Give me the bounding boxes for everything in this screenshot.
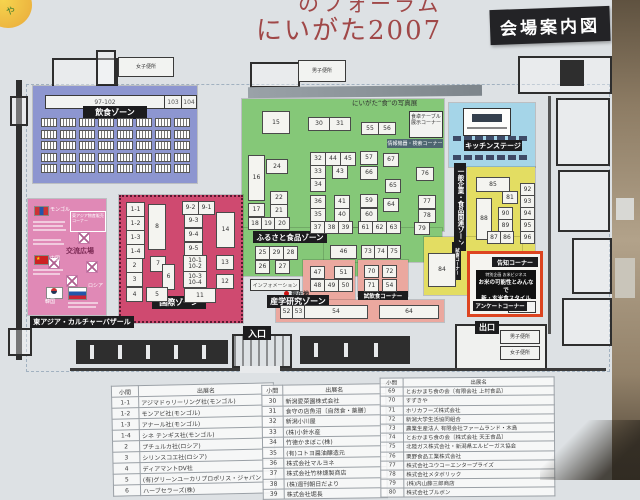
- dining-table-icon: [136, 164, 152, 173]
- booth-19: 19: [261, 217, 275, 230]
- booth-27: 27: [275, 260, 290, 274]
- dining-table-icon: [60, 164, 76, 173]
- decor-line: [33, 221, 65, 223]
- kitchen-seat-icon: [486, 155, 494, 160]
- russia-label: ロシア: [88, 283, 103, 289]
- dining-table-icon: [98, 118, 114, 127]
- restroom-label: 女子便所: [136, 64, 156, 70]
- booth-41: 41: [334, 195, 350, 209]
- booth-number-cell: 3: [113, 452, 140, 464]
- column-header: 小間: [262, 385, 283, 396]
- booth-number-cell: 78: [381, 470, 404, 479]
- dining-table-icon: [155, 141, 171, 150]
- booth-60: 60: [360, 208, 378, 222]
- booth-64: 64: [383, 198, 399, 212]
- booth-10-1|10-2: 10-1 10-2: [183, 255, 207, 272]
- zone-bazaar-label: 東アジア・カルチャーバザール: [30, 316, 134, 328]
- booth-59: 59: [360, 194, 378, 208]
- booth-number-cell: 1-3: [112, 419, 139, 431]
- table-display-box: 食卓テーブル 展示コーナー: [409, 111, 443, 138]
- decor-line: [33, 273, 60, 275]
- zone-bazaar: モンゴル 東アジア物産販売コーナー 交流広場 ★ 中国 韓国 ロシア: [28, 199, 106, 315]
- booth-50: 50: [338, 279, 353, 292]
- dining-table-icon: [117, 118, 133, 127]
- kitchen-seat-icon: [508, 155, 516, 160]
- booth-37: 37: [310, 221, 325, 234]
- wall-slit: [202, 345, 206, 359]
- logo-fragment: や: [0, 0, 32, 28]
- dining-table-icon: [174, 164, 190, 173]
- booth-57: 57: [360, 151, 378, 165]
- dining-table-icon: [98, 153, 114, 162]
- booth-29: 29: [269, 246, 284, 260]
- restroom-label: 女子便所: [510, 350, 530, 356]
- booth-35: 35: [310, 208, 326, 222]
- decor-line: [33, 269, 63, 271]
- booth-44: 44: [325, 152, 341, 166]
- booth-87: 87: [487, 231, 501, 244]
- booth-73: 73: [361, 245, 375, 259]
- entrance-label: 入口: [243, 326, 271, 340]
- dining-table-icon: [136, 130, 152, 139]
- booth-43: 43: [332, 165, 348, 179]
- booth-96: 96: [520, 231, 535, 244]
- booth-70: 70: [364, 265, 379, 278]
- wall-segment: [70, 368, 606, 371]
- zone-kitchen-label: キッチンステージ: [464, 140, 522, 151]
- dining-table-icon: [41, 153, 57, 162]
- wall-slit: [314, 343, 318, 357]
- kitchen-seat-icon: [519, 155, 527, 160]
- booth-36: 36: [310, 195, 326, 209]
- booth-62: 62: [372, 221, 387, 234]
- booth-46: 46: [330, 245, 357, 259]
- wall-segment: [562, 298, 612, 346]
- table-icon: [78, 232, 90, 244]
- booth-number-cell: 34: [262, 437, 283, 448]
- restroom-label: 男子便所: [510, 334, 530, 340]
- dining-table-icon: [136, 118, 152, 127]
- booth-number-cell: 69: [380, 387, 403, 396]
- booth-21: 21: [270, 204, 288, 218]
- russia-flag-icon: [68, 287, 87, 300]
- booth-104-label: 104: [183, 99, 194, 106]
- booth-9-3: 9-3: [184, 214, 203, 228]
- booth-number-cell: 74: [380, 433, 403, 442]
- booth-61: 61: [358, 221, 373, 234]
- dining-table-icon: [117, 141, 133, 150]
- booth-25: 25: [255, 246, 270, 260]
- booth-2: 2: [126, 258, 143, 273]
- booth-9-2: 9-2: [182, 201, 199, 215]
- booth-number-cell: 6: [113, 485, 140, 497]
- dining-table-icon: [79, 118, 95, 127]
- booth-63: 63: [386, 221, 401, 234]
- wall-segment: [250, 62, 300, 88]
- kitchen-seat-icon: [497, 155, 505, 160]
- dining-table-icon: [174, 118, 190, 127]
- notice-line: お米の可能性とみんなで: [476, 278, 536, 294]
- booth-number-cell: 1-4: [112, 430, 139, 442]
- information-label: インフォメーション: [253, 282, 298, 289]
- booth-38: 38: [324, 221, 339, 234]
- booth-49: 49: [324, 279, 339, 292]
- decor-line: [33, 243, 64, 245]
- wall-segment: [96, 50, 116, 86]
- booth-86: 86: [500, 231, 514, 244]
- dining-table-icon: [60, 118, 76, 127]
- booth-1-3: 1-3: [126, 230, 145, 245]
- dining-table-icon: [174, 141, 190, 150]
- booth-number-cell: 37: [263, 468, 284, 479]
- booth-number-cell: 39: [263, 489, 284, 500]
- booth-54: 54: [382, 279, 397, 292]
- photo-background-object: [615, 258, 635, 298]
- restroom-box: 男子便所: [500, 330, 540, 344]
- table-row: 39株式会社堀長: [263, 488, 387, 500]
- booth-12: 12: [216, 274, 234, 289]
- booth-17: 17: [248, 203, 265, 217]
- survey-corner-label: アンケートコーナー: [473, 301, 527, 311]
- wall-slit: [344, 343, 348, 357]
- booth-33: 33: [310, 165, 326, 179]
- photo-background-object: [616, 198, 634, 220]
- dining-table-icon: [136, 141, 152, 150]
- booth-81: 81: [502, 191, 518, 204]
- restroom-box: 女子便所: [118, 57, 174, 77]
- korea-label: 韓国: [45, 299, 55, 305]
- china-flag-icon: ★: [34, 255, 49, 265]
- booth-number-cell: 4: [113, 463, 140, 475]
- dining-table-icon: [60, 130, 76, 139]
- booth-54: 54: [304, 305, 368, 319]
- zone-general-label: 一般企業・食品関連ゾーン: [454, 163, 466, 251]
- booth-number-cell: 38: [263, 479, 284, 490]
- restroom-label: 男子便所: [312, 68, 332, 74]
- booth-77: 77: [418, 195, 436, 209]
- entrance-gap: [240, 366, 280, 373]
- zone-dining: 97-102 103 104 飲食ゾーン: [33, 86, 197, 183]
- dining-table-icon: [41, 141, 57, 150]
- booth-78: 78: [418, 209, 436, 223]
- venue-map-sign: や のフォーラム にいがた2007 会場案内図 女子便所 男子便所 男子便所 女…: [0, 0, 640, 480]
- zone-kitchen: キッチンステージ: [449, 103, 535, 167]
- booth-85: 85: [476, 177, 510, 192]
- dining-table-icon: [174, 130, 190, 139]
- booth-number-cell: 31: [262, 406, 283, 417]
- booth-26: 26: [255, 260, 270, 274]
- wall-segment: [572, 238, 612, 294]
- decor-line: [33, 225, 63, 227]
- kitchen-seat-icon: [464, 155, 472, 160]
- booth-1-4: 1-4: [126, 244, 145, 259]
- dining-table-icon: [79, 141, 95, 150]
- dining-table-icon: [60, 153, 76, 162]
- booth-72: 72: [382, 265, 397, 278]
- wall-segment: [10, 96, 28, 126]
- booth-4: 4: [126, 287, 143, 302]
- bazaar-corner-box: 東アジア物産販売コーナー: [70, 211, 106, 232]
- wall-segment: [556, 98, 610, 166]
- booth-number-cell: 71: [380, 406, 403, 415]
- dining-table-icon: [155, 130, 171, 139]
- booth-number-cell: 32: [262, 416, 283, 427]
- wall-segment: [558, 170, 610, 232]
- table-row: 6ハーブセラーズ(株): [113, 482, 275, 496]
- dining-table-icon: [98, 141, 114, 150]
- booth-51: 51: [334, 266, 353, 279]
- booth-47: 47: [310, 266, 325, 279]
- booth-number-cell: 5: [113, 474, 140, 486]
- wall-slit: [118, 345, 122, 359]
- logo-char: や: [6, 4, 15, 17]
- booth-28: 28: [283, 246, 298, 260]
- mongolia-flag-icon: [34, 206, 49, 216]
- booth-64: 64: [379, 305, 439, 319]
- dining-table-icon: [98, 130, 114, 139]
- exhibitor-table-group-2: 小間出展名30新潟愛菜園株式会社31食守の店魚沼〔自然食・薬膳〕32新潟小川屋3…: [261, 383, 388, 500]
- booth-14: 14: [216, 212, 235, 248]
- booth-number-cell: 35: [263, 447, 284, 458]
- booth-32: 32: [310, 152, 326, 166]
- wall-slit: [90, 345, 94, 359]
- dining-table-icon: [98, 164, 114, 173]
- exhibitor-name-cell: 株式会社ブルボン: [404, 487, 555, 497]
- booth-103: 103: [164, 95, 182, 109]
- wall-slit: [374, 343, 378, 357]
- booth-30: 30: [308, 117, 330, 131]
- booth-number-cell: 70: [380, 396, 403, 405]
- dining-table-icon: [41, 164, 57, 173]
- booth-22: 22: [270, 191, 288, 205]
- tasting-corner-label: 試飲食コーナー: [358, 291, 408, 300]
- booth-66: 66: [360, 166, 378, 180]
- dining-table-icon: [41, 130, 57, 139]
- booth-number-cell: 30: [262, 395, 283, 406]
- booth-number-cell: 33: [262, 427, 283, 438]
- booth-number-cell: 75: [381, 442, 404, 451]
- exit-label: 出口: [475, 321, 499, 334]
- wall-segment: [76, 340, 228, 364]
- restroom-box: 男子便所: [298, 60, 346, 82]
- booth-79: 79: [414, 222, 430, 235]
- booth-number-cell: 80: [381, 488, 404, 497]
- booth-104: 104: [181, 95, 197, 109]
- booth-103-label: 103: [167, 99, 178, 106]
- decor-line: [33, 239, 61, 241]
- kitchen-seat-icon: [453, 136, 461, 141]
- dining-table-icon: [79, 164, 95, 173]
- dining-table-icon: [60, 141, 76, 150]
- booth-number-cell: 72: [380, 415, 403, 424]
- dining-table-icon: [155, 153, 171, 162]
- dining-table-icon: [117, 153, 133, 162]
- wall-segment: [548, 96, 551, 334]
- booth-10-3|10-4: 10-3 10-4: [183, 271, 207, 288]
- booth-18: 18: [248, 217, 262, 230]
- dining-table-icon: [79, 153, 95, 162]
- booth-3: 3: [126, 272, 143, 287]
- wall-segment: [300, 336, 410, 364]
- dining-strip-label: 97-102: [94, 99, 115, 106]
- booth-65: 65: [385, 179, 401, 193]
- plaza-label: 交流広場: [66, 246, 94, 256]
- booth-9-4: 9-4: [184, 228, 203, 242]
- booth-56: 56: [378, 122, 396, 135]
- restroom-box: 女子便所: [500, 346, 540, 360]
- booth-15: 15: [262, 111, 290, 134]
- booth-48: 48: [310, 279, 325, 292]
- table-display-line: 展示コーナー: [411, 120, 441, 126]
- booth-number-cell: 2: [113, 441, 140, 453]
- photo-exhibit-label: にいがた“食”の写真展: [352, 97, 417, 107]
- kitchen-seat-icon: [453, 155, 461, 160]
- table-icon: [86, 261, 98, 273]
- wall-segment: [8, 328, 32, 356]
- booth-9-5: 9-5: [184, 242, 203, 256]
- booth-67: 67: [383, 153, 399, 167]
- booth-11: 11: [184, 288, 216, 303]
- photo-wall-edge: [612, 0, 640, 480]
- event-title-line2: にいがた2007: [256, 10, 442, 47]
- booth-number-cell: 76: [381, 451, 404, 460]
- table-row: 80株式会社ブルボン: [381, 487, 555, 497]
- stage-table: [472, 114, 502, 122]
- booth-71: 71: [364, 279, 379, 292]
- booth-number-cell: 1-1: [112, 397, 139, 409]
- korea-flag-icon: [46, 287, 63, 299]
- wall-segment: [560, 60, 584, 86]
- dining-table-icon: [41, 118, 57, 127]
- table-icon: [66, 275, 78, 287]
- booth-74: 74: [374, 245, 388, 259]
- booth-45: 45: [340, 152, 356, 166]
- booth-8: 8: [148, 204, 166, 250]
- photo-corner-shadow: [540, 420, 640, 480]
- dining-table-icon: [155, 118, 171, 127]
- notice-special-box: 特別企画 お米ビジネス お米の可能性とみんなで 新・玄米食スタイル: [476, 270, 536, 299]
- booth-number-cell: 79: [381, 479, 404, 488]
- exhibitor-name-cell: 株式会社堀長: [284, 488, 387, 500]
- china-label: 中国: [50, 256, 60, 262]
- wall-slit: [146, 345, 150, 359]
- notice-corner-box: 告知コーナー 特別企画 お米ビジネス お米の可能性とみんなで 新・玄米食スタイル…: [467, 251, 543, 317]
- booth-number-cell: 77: [381, 461, 404, 470]
- notice-corner-label: 告知コーナー: [492, 257, 538, 267]
- booth-84: 84: [428, 253, 456, 287]
- stage-platform: [463, 108, 511, 136]
- search-corner-bar: 情報機器・検索コーナー: [387, 139, 443, 148]
- booth-number-cell: 1-2: [112, 408, 139, 420]
- booth-55: 55: [361, 122, 379, 135]
- dining-table-icon: [136, 153, 152, 162]
- decor-line: [33, 229, 66, 231]
- dining-table-icon: [117, 130, 133, 139]
- decor-line: [68, 306, 96, 308]
- booth-34: 34: [310, 178, 326, 192]
- stage-line: [467, 127, 507, 129]
- exhibitor-name-cell: ハーブセラーズ(株): [140, 482, 275, 496]
- dining-table-icon: [117, 164, 133, 173]
- booth-31: 31: [329, 117, 351, 131]
- booth-16: 16: [248, 155, 265, 201]
- map-title-badge: 会場案内図: [489, 6, 610, 45]
- dining-table-icon: [79, 130, 95, 139]
- booth-40: 40: [334, 208, 350, 222]
- booth-13: 13: [216, 255, 234, 270]
- booth-20: 20: [274, 217, 290, 230]
- booth-75: 75: [387, 245, 401, 259]
- wall-slit: [174, 345, 178, 359]
- booth-1-1: 1-1: [126, 202, 145, 217]
- booth-number-cell: 73: [380, 424, 403, 433]
- kitchen-seat-icon: [475, 155, 483, 160]
- booth-9-1: 9-1: [198, 201, 215, 215]
- booth-24: 24: [266, 159, 288, 174]
- mongolia-label: モンゴル: [50, 207, 70, 213]
- booth-5: 5: [146, 287, 168, 302]
- dining-table-icon: [155, 164, 171, 173]
- booth-39: 39: [338, 221, 353, 234]
- decor-line: [68, 302, 98, 304]
- booth-76: 76: [416, 167, 434, 181]
- column-header: 小間: [111, 386, 138, 398]
- booth-number-cell: 36: [263, 458, 284, 469]
- column-header: 小間: [380, 378, 403, 387]
- booth-1-2: 1-2: [126, 216, 145, 231]
- dining-table-icon: [174, 153, 190, 162]
